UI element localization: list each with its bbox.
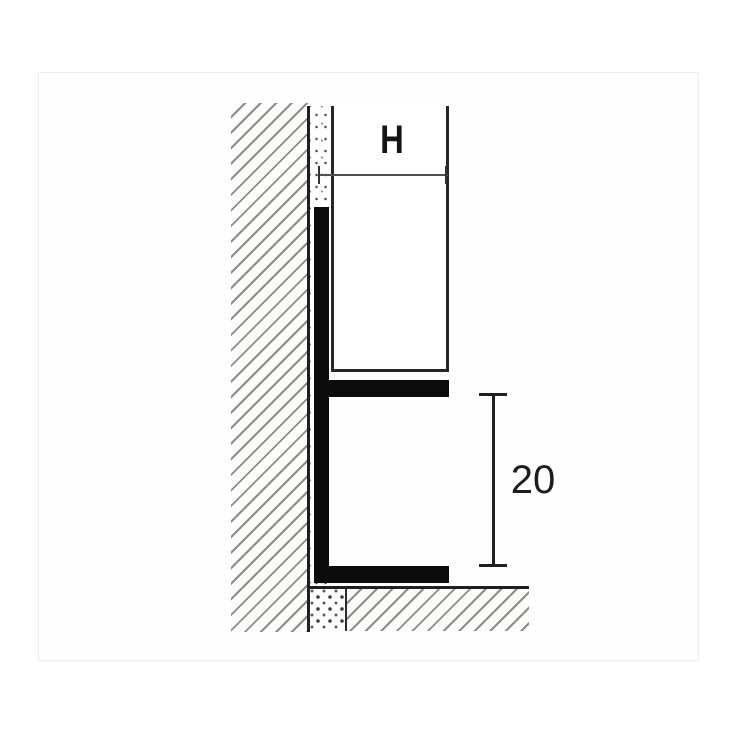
dimension-20-line [492, 395, 495, 566]
dimension-h-label: H [367, 118, 416, 162]
dimension-20-top-bar [479, 393, 507, 396]
wall-section-hatch [231, 103, 308, 632]
technical-drawing-canvas: H 20 [0, 0, 735, 735]
mortar-bed-stipple [310, 589, 345, 631]
floor-screed-hatch [347, 589, 529, 631]
dimension-20-label: 20 [504, 458, 562, 502]
dimension-h-line [319, 174, 448, 176]
dimension-h-left-tick [318, 166, 320, 184]
profile-bottom-flange [314, 566, 449, 583]
dimension-20-bottom-bar [479, 564, 507, 567]
profile-top-flange [314, 380, 449, 397]
dimension-h-right-tick [445, 166, 447, 184]
